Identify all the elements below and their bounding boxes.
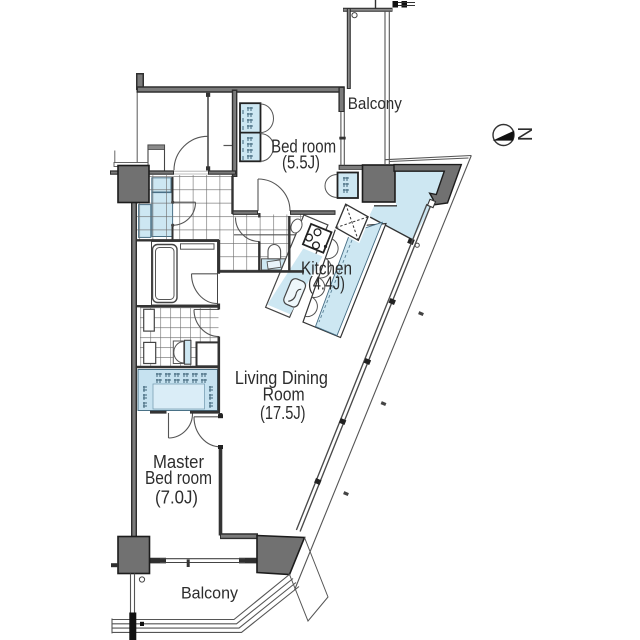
svg-text:N: N <box>513 127 535 141</box>
svg-text:(4.4J): (4.4J) <box>308 274 345 294</box>
svg-text:Balcony: Balcony <box>181 584 238 603</box>
svg-text:(17.5J): (17.5J) <box>260 403 306 423</box>
svg-text:Bed room: Bed room <box>145 468 212 488</box>
svg-text:(7.0J): (7.0J) <box>155 488 198 508</box>
svg-text:(5.5J): (5.5J) <box>282 153 320 173</box>
svg-text:Room: Room <box>263 385 305 405</box>
svg-text:Balcony: Balcony <box>348 95 403 113</box>
